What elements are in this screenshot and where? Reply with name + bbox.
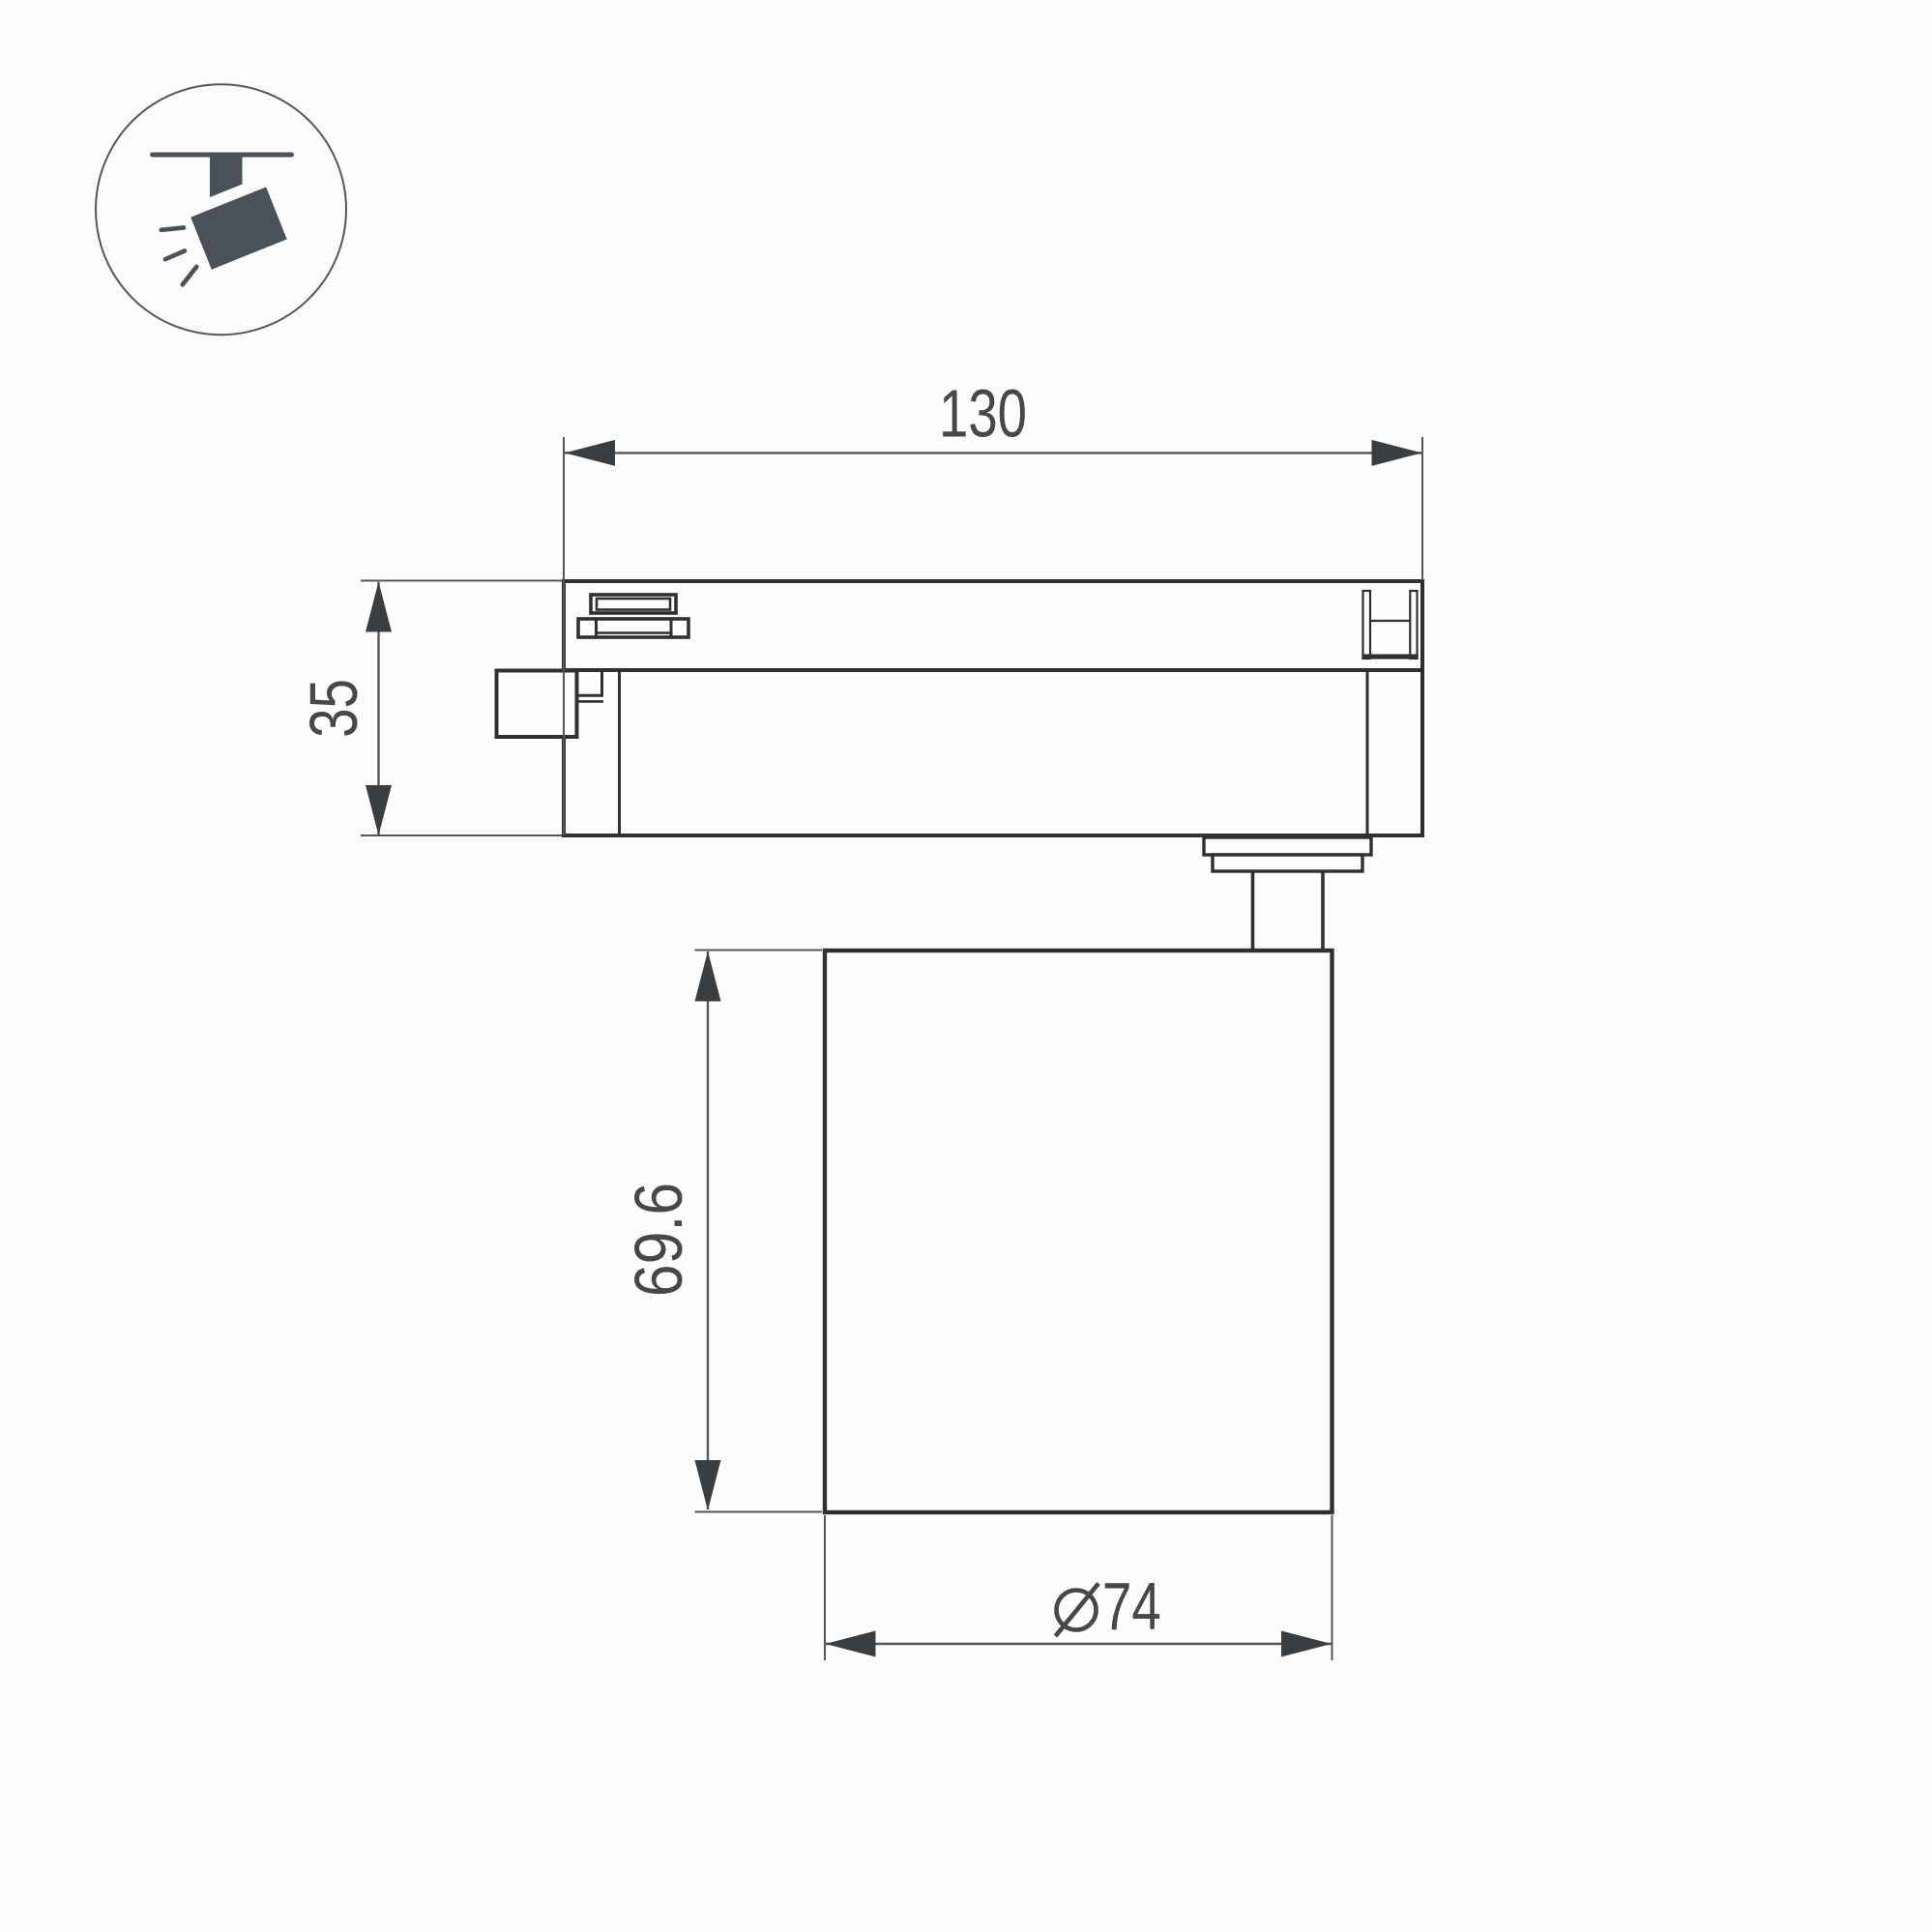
svg-text:74: 74: [1102, 1569, 1161, 1645]
svg-text:35: 35: [297, 679, 372, 738]
svg-text:69.6: 69.6: [621, 1183, 696, 1298]
svg-text:130: 130: [939, 376, 1027, 452]
